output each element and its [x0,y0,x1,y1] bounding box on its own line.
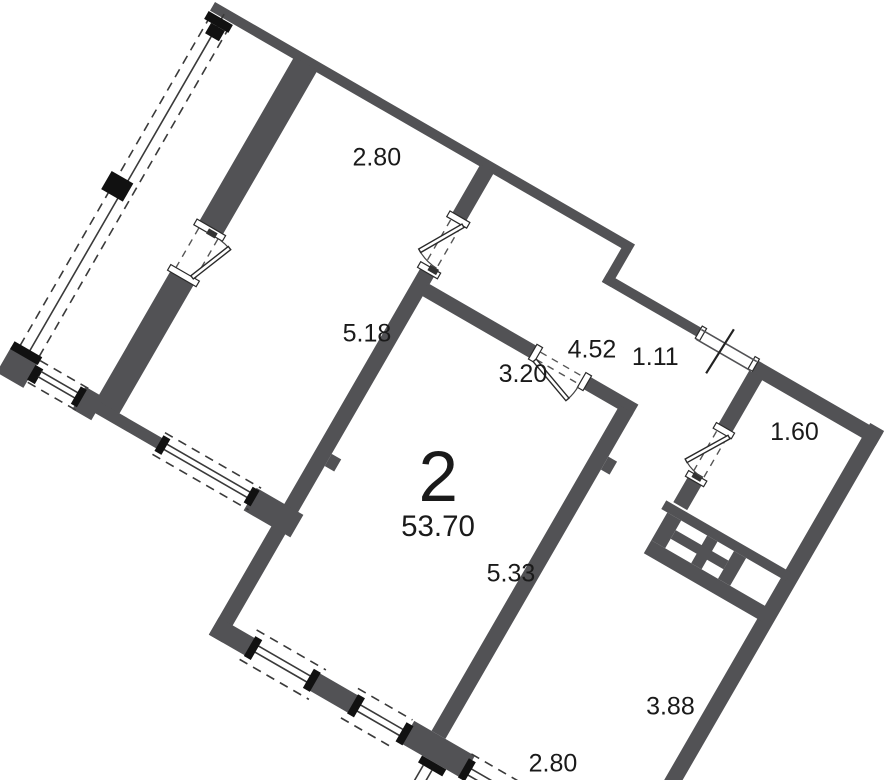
svg-text:2: 2 [419,438,459,517]
svg-text:5.33: 5.33 [487,559,536,587]
svg-text:3.88: 3.88 [646,693,695,721]
svg-text:4.52: 4.52 [568,335,617,363]
svg-text:3.20: 3.20 [499,360,548,388]
svg-text:2.80: 2.80 [352,143,401,171]
svg-text:5.18: 5.18 [343,320,392,348]
svg-text:2.80: 2.80 [529,750,578,778]
svg-text:1.11: 1.11 [632,343,679,371]
svg-text:1.60: 1.60 [770,418,819,446]
